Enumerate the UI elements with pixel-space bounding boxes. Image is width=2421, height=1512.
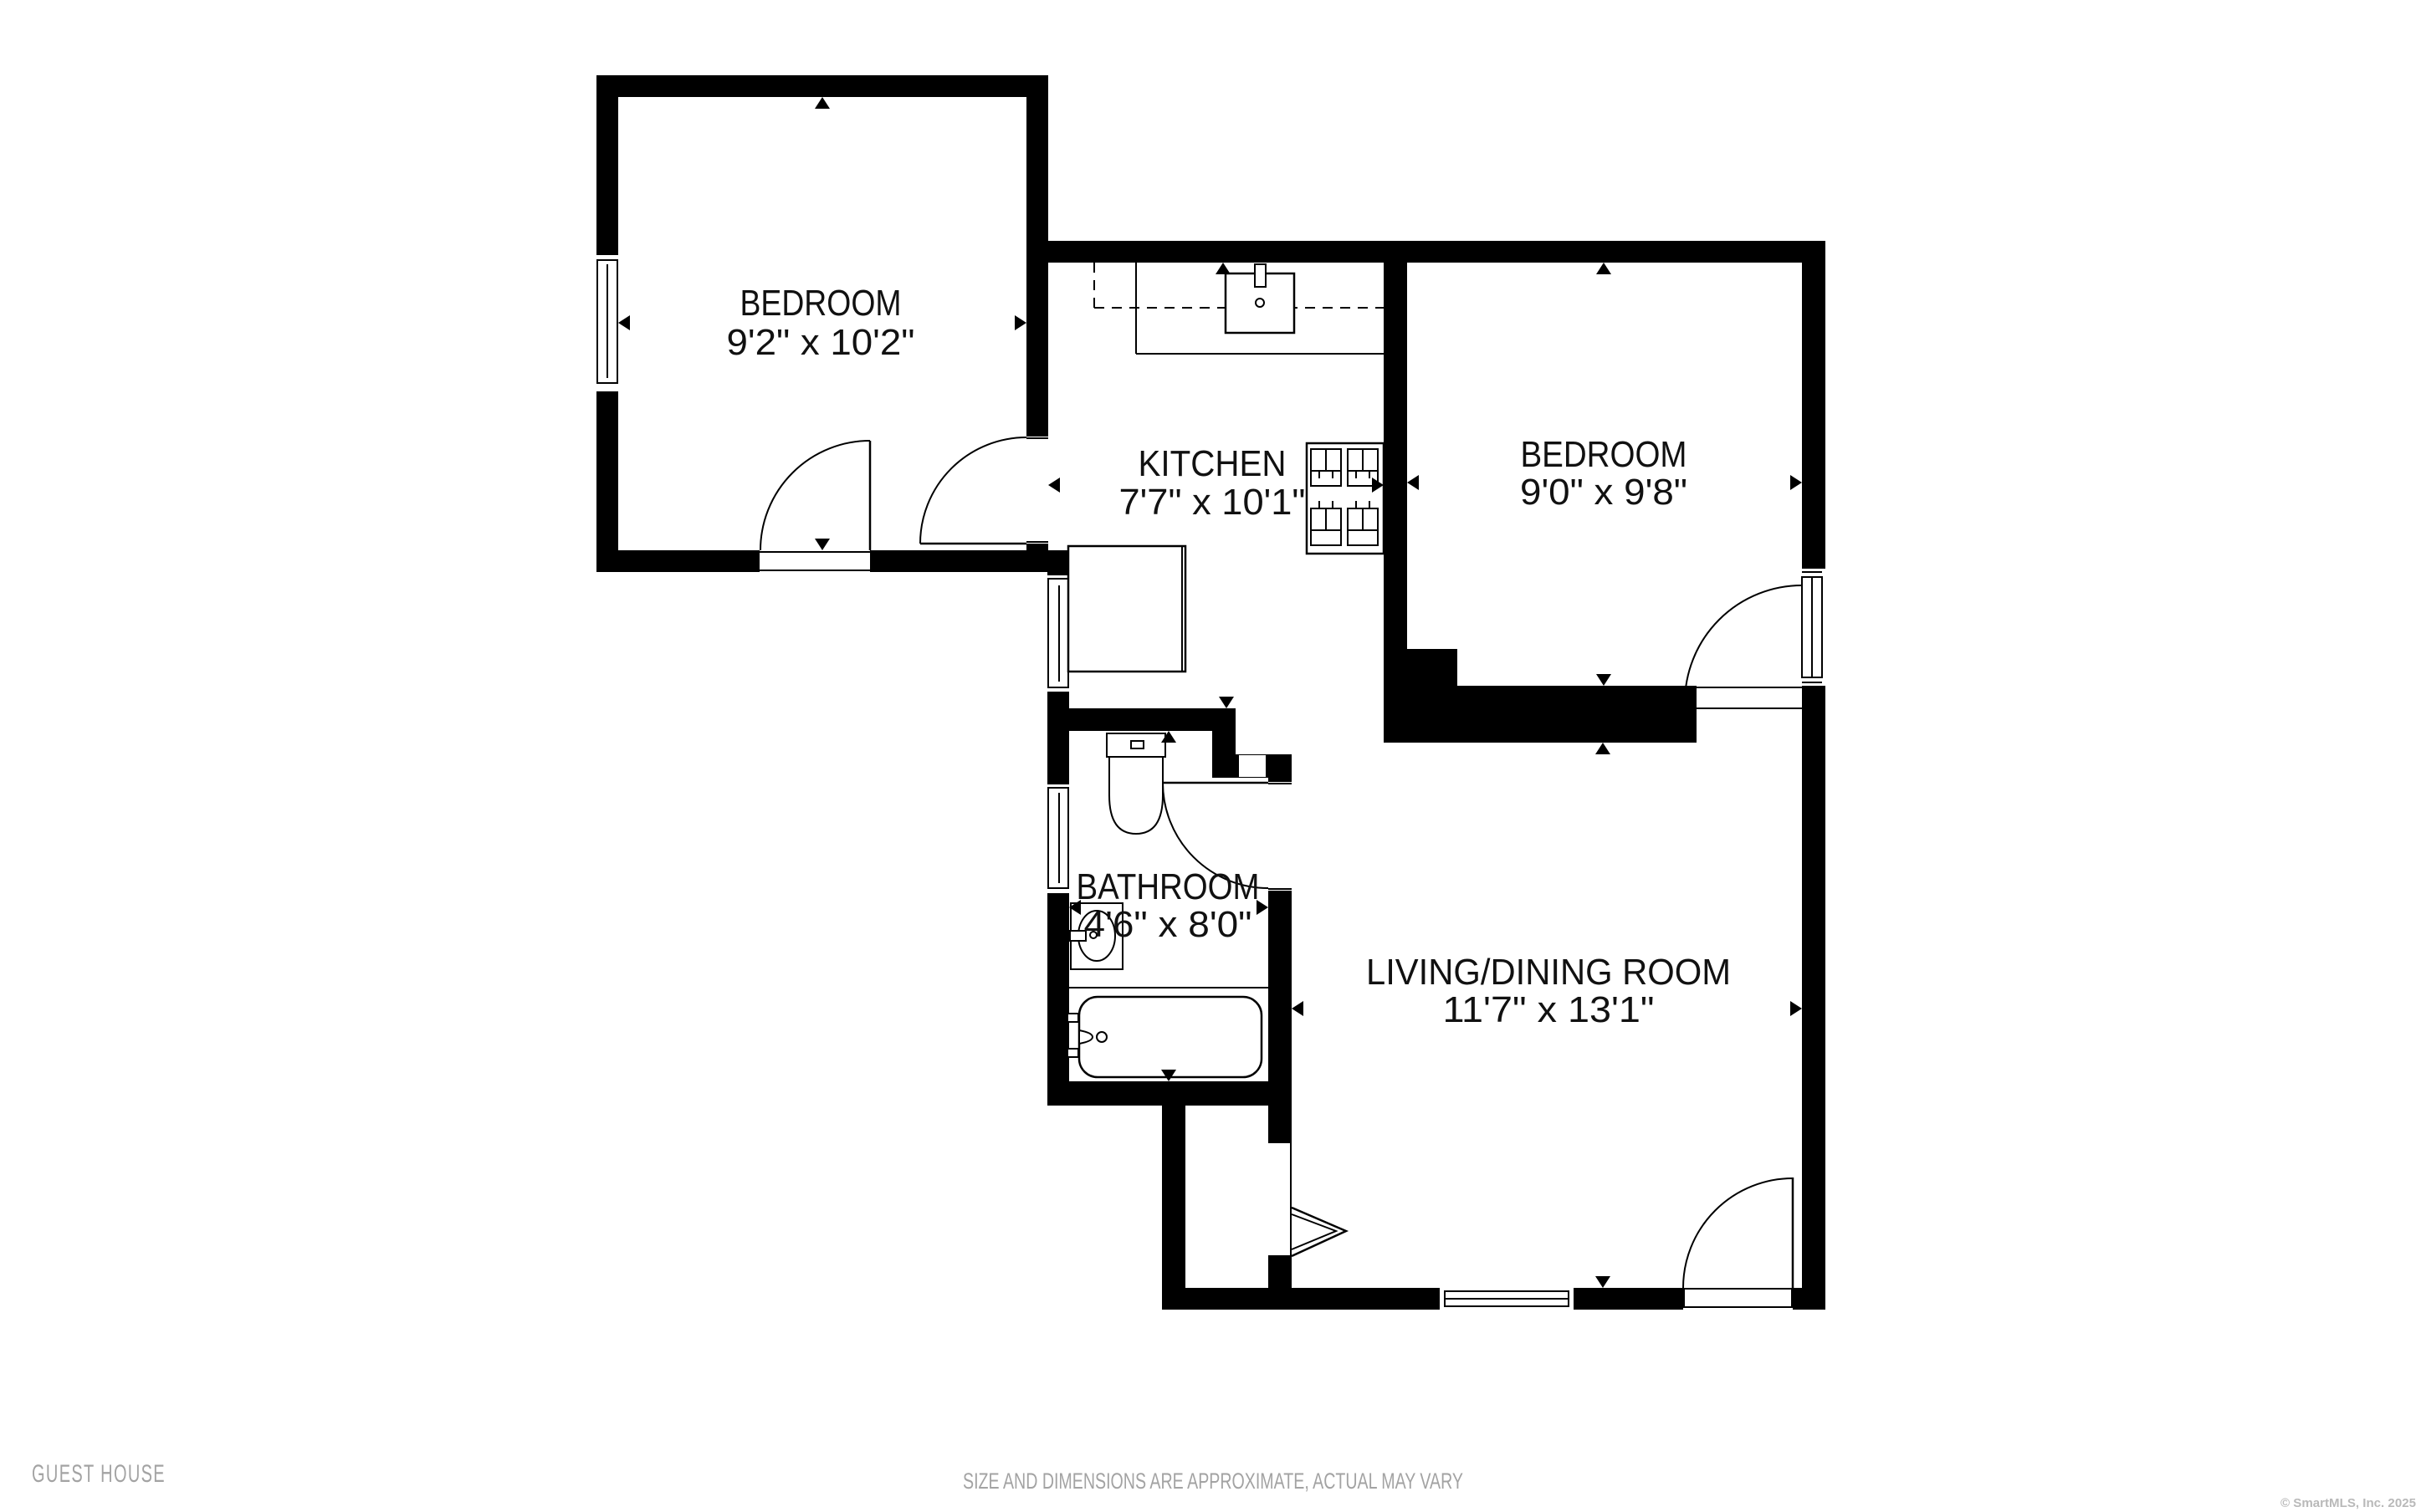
arrow-right-icon bbox=[1790, 475, 1802, 490]
opening-gap bbox=[1025, 437, 1050, 544]
opening-entry-vestibule bbox=[1267, 1142, 1293, 1257]
toilet-icon bbox=[1107, 733, 1165, 834]
wall bbox=[596, 75, 1048, 97]
toilet-flush bbox=[1131, 741, 1144, 748]
room-label-bathroom-dims: 4'6" x 8'0" bbox=[1084, 904, 1252, 945]
counter-box bbox=[1068, 546, 1185, 672]
wall-notch bbox=[1407, 649, 1457, 687]
kitchen-sink-icon bbox=[1226, 264, 1294, 333]
stove-body bbox=[1307, 443, 1384, 554]
arrow-right-icon bbox=[1015, 315, 1026, 330]
wall bbox=[1047, 1081, 1292, 1106]
arrow-left-icon bbox=[618, 315, 630, 330]
windows bbox=[595, 255, 1574, 1310]
tub-handle bbox=[1067, 1049, 1078, 1057]
window-living-bottom bbox=[1440, 1288, 1574, 1310]
opening-gap bbox=[1267, 1142, 1293, 1257]
room-label-bathroom-name: BATHROOM bbox=[1077, 866, 1260, 907]
arrow-down-icon bbox=[1595, 1276, 1610, 1288]
opening-gap bbox=[1237, 755, 1267, 777]
opening-gap bbox=[1800, 569, 1827, 686]
room-label-living-name: LIVING/DINING ROOM bbox=[1366, 952, 1731, 993]
opening-bedroom1-right bbox=[1025, 437, 1050, 544]
door-swing-arc bbox=[760, 441, 870, 550]
door-leaf bbox=[1292, 1208, 1346, 1256]
arrow-up-icon bbox=[815, 97, 830, 109]
door-bedroom1-bottom bbox=[760, 441, 870, 550]
arrow-up-icon bbox=[1216, 263, 1231, 274]
wall bbox=[1047, 708, 1236, 731]
window-kitchen-left bbox=[1046, 575, 1071, 692]
wall bbox=[1384, 241, 1407, 686]
room-label-living-dims: 11'7" x 13'1" bbox=[1443, 989, 1655, 1030]
window-bedroom1-left bbox=[595, 255, 620, 391]
property-label: GUEST HOUSE bbox=[32, 1460, 166, 1488]
fixtures bbox=[1067, 263, 1384, 1077]
door-bedroom1-right bbox=[920, 437, 1026, 544]
room-labels: BEDROOM 9'2" x 10'2" KITCHEN 7'7" x 10'1… bbox=[727, 283, 1732, 1030]
footer: GUEST HOUSE SIZE AND DIMENSIONS ARE APPR… bbox=[32, 1460, 2416, 1510]
room-label-bedroom2-dims: 9'0" x 9'8" bbox=[1520, 472, 1687, 513]
arrow-up-icon bbox=[1595, 743, 1610, 754]
walls bbox=[596, 75, 1825, 1310]
copyright-text: © SmartMLS, Inc. 2025 bbox=[2280, 1496, 2416, 1510]
door-entry-wedge bbox=[1292, 1208, 1346, 1256]
room-label-bedroom2-name: BEDROOM bbox=[1521, 434, 1687, 475]
opening-living-door bbox=[1683, 1287, 1793, 1310]
door-swing-arc bbox=[920, 437, 1026, 544]
opening-bedroom2-bottom bbox=[1697, 685, 1802, 710]
floor-plan-canvas: BEDROOM 9'2" x 10'2" KITCHEN 7'7" x 10'1… bbox=[0, 0, 2421, 1512]
opening-bathroom-door bbox=[1267, 782, 1293, 891]
arrow-left-icon bbox=[1407, 475, 1419, 490]
room-label-kitchen-dims: 7'7" x 10'1" bbox=[1119, 482, 1306, 523]
arrow-up-icon bbox=[1596, 263, 1611, 274]
opening-gap bbox=[1697, 685, 1802, 710]
window-bathroom-left bbox=[1046, 784, 1071, 893]
kitchen-sink-drain bbox=[1256, 299, 1264, 307]
opening-bedroom1-bottom bbox=[760, 549, 870, 574]
room-label-bedroom1-dims: 9'2" x 10'2" bbox=[727, 322, 915, 363]
arrow-down-icon bbox=[1219, 697, 1234, 708]
counter-icon bbox=[1068, 546, 1185, 672]
opening-kitchen-step bbox=[1237, 754, 1267, 778]
arrow-down-icon bbox=[1596, 674, 1611, 686]
tub-drain bbox=[1097, 1032, 1107, 1042]
wall bbox=[1384, 709, 1697, 743]
wall bbox=[1212, 731, 1236, 778]
bathtub-icon bbox=[1067, 997, 1262, 1077]
room-label-kitchen-name: KITCHEN bbox=[1139, 443, 1287, 484]
wall bbox=[1802, 241, 1825, 1310]
disclaimer-text: SIZE AND DIMENSIONS ARE APPROXIMATE, ACT… bbox=[963, 1469, 1463, 1494]
tub-handle bbox=[1067, 1014, 1078, 1022]
arrow-left-icon bbox=[1292, 1001, 1303, 1016]
stove-icon bbox=[1307, 443, 1384, 554]
bedroom2-door-leaf-panel bbox=[1800, 569, 1827, 686]
arrow-right-icon bbox=[1790, 1001, 1802, 1016]
wall bbox=[1162, 1106, 1185, 1310]
wall bbox=[1048, 241, 1825, 263]
opening-gap bbox=[1267, 782, 1293, 891]
room-label-bedroom1-name: BEDROOM bbox=[740, 283, 902, 324]
arrow-down-icon bbox=[815, 539, 830, 550]
kitchen-sink-faucet bbox=[1255, 264, 1266, 287]
toilet-bowl bbox=[1109, 757, 1163, 834]
door-living-bottom bbox=[1683, 1177, 1793, 1288]
door-swing-arc bbox=[1683, 1178, 1793, 1288]
door-leaf bbox=[1292, 1214, 1336, 1249]
arrow-left-icon bbox=[1048, 478, 1060, 493]
floor-plan-page: BEDROOM 9'2" x 10'2" KITCHEN 7'7" x 10'1… bbox=[0, 0, 2421, 1512]
